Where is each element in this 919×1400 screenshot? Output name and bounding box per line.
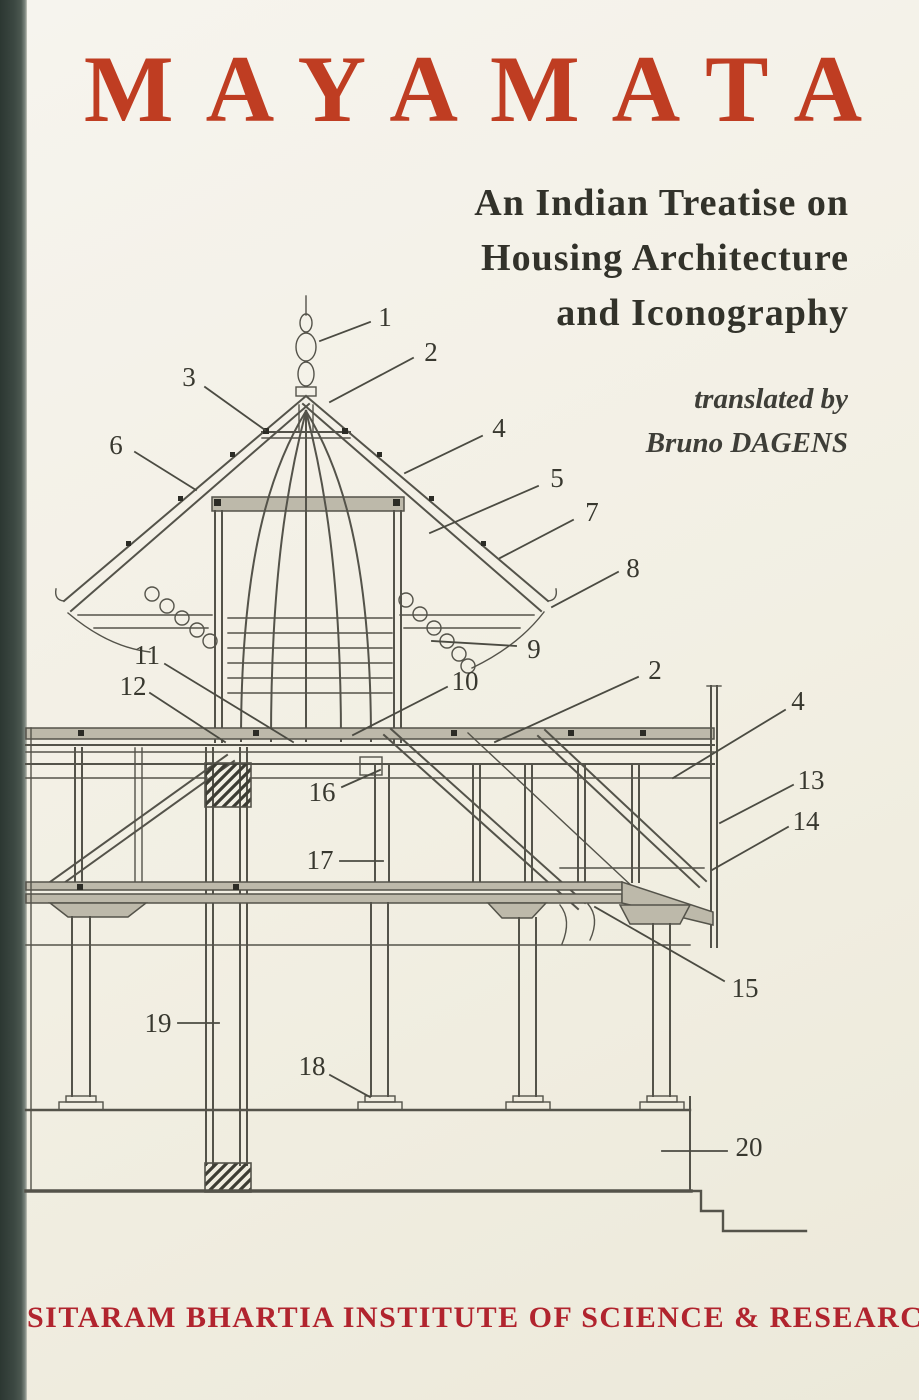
callout-leader-7 xyxy=(500,520,573,558)
callout-label-17: 17 xyxy=(307,845,334,875)
callout-leader-13 xyxy=(720,785,793,823)
callout-leader-18 xyxy=(330,1075,370,1097)
callout-leader-9 xyxy=(432,641,516,646)
callout-label-19: 19 xyxy=(145,1008,172,1038)
lower-columns xyxy=(26,903,690,1110)
callout-label-1: 1 xyxy=(378,302,392,332)
callout-label-18: 18 xyxy=(299,1051,326,1081)
central-column xyxy=(205,748,251,1192)
callout-label-7: 7 xyxy=(585,497,599,527)
callout-leader-2 xyxy=(330,358,413,402)
callout-leader-4 xyxy=(405,436,482,473)
callout-label-13: 13 xyxy=(798,765,825,795)
plinth-and-steps xyxy=(26,728,806,1231)
architecture-cross-section-illustration: 123456789101112241314151617181920 xyxy=(0,0,919,1400)
book-cover: MAYAMATA An Indian Treatise on Housing A… xyxy=(0,0,919,1400)
callout-label-10: 10 xyxy=(452,666,479,696)
callout-label-14: 14 xyxy=(793,806,821,836)
callout-label-8: 8 xyxy=(626,553,640,583)
callout-leader-14 xyxy=(712,827,788,870)
upper-floor-band xyxy=(26,728,714,764)
right-terrace-post xyxy=(707,686,721,947)
main-beams xyxy=(26,882,713,944)
callout-label-15: 15 xyxy=(732,973,759,1003)
callout-label-5: 5 xyxy=(550,463,564,493)
callout-leader-3 xyxy=(205,387,265,430)
callout-leader-8 xyxy=(552,572,618,607)
callout-label-3: 3 xyxy=(182,362,196,392)
finial-kalasha xyxy=(296,296,316,396)
callout-label-11: 11 xyxy=(134,640,160,670)
callout-label-9: 9 xyxy=(527,634,541,664)
callout-label-4: 4 xyxy=(492,413,506,443)
callout-leader-5 xyxy=(430,486,538,533)
callout-label-2: 2 xyxy=(648,655,662,685)
callout-label-16: 16 xyxy=(309,777,336,807)
callout-label-6: 6 xyxy=(109,430,123,460)
callout-leader-1 xyxy=(320,322,370,341)
callout-label-20: 20 xyxy=(736,1132,763,1162)
callout-label-12: 12 xyxy=(120,671,147,701)
callout-label-4: 4 xyxy=(791,686,805,716)
publisher-name: SITARAM BHARTIA INSTITUTE OF SCIENCE & R… xyxy=(27,1301,919,1335)
callout-leader-6 xyxy=(135,452,196,490)
callout-label-2: 2 xyxy=(424,337,438,367)
